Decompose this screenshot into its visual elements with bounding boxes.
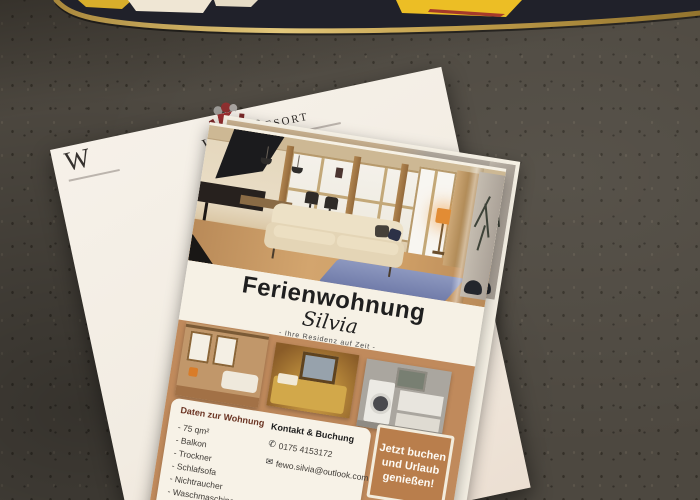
apartment-data-list: - 75 qm² - Balkon - Trockner - Schlafsof… [165, 421, 266, 500]
table-surface: W W Resort [0, 0, 700, 500]
gold-tray [0, 0, 700, 58]
contact-column: Kontakt & Buchung ✆ 0175 4153172 ✉ fewo.… [265, 421, 369, 482]
window [395, 367, 428, 391]
photo-living-room [175, 322, 270, 408]
cabinet [397, 390, 444, 417]
phone-number: 0175 4153172 [278, 441, 333, 459]
paper-corner-in-tray [214, 0, 258, 7]
email-icon: ✉ [265, 457, 274, 468]
booking-cta-text: Jetzt buchen und Urlaub genießen! [374, 440, 448, 493]
sofa-leg [388, 267, 392, 277]
letterhead-monogram: W [62, 142, 93, 178]
lamp-base [432, 250, 444, 255]
window [212, 335, 238, 368]
vase-silhouette [463, 279, 483, 296]
phone-icon: ✆ [268, 439, 277, 450]
apartment-data-column: Daten zur Wohnung - 75 qm² - Balkon - Tr… [165, 405, 269, 500]
bamboo-branch [485, 204, 490, 238]
white-paper-in-tray [128, 0, 212, 13]
lamp-pole [438, 224, 444, 252]
sofa-leg [271, 248, 275, 258]
bamboo-branch [474, 196, 491, 227]
photo-bathroom-laundry [356, 358, 452, 439]
white-sofa [221, 370, 259, 393]
bamboo-branch [476, 225, 486, 250]
orange-cushion [188, 367, 198, 377]
booking-cta-box: Jetzt buchen und Urlaub genießen! [366, 424, 455, 500]
photo-bedroom [266, 342, 359, 418]
window [186, 331, 212, 364]
